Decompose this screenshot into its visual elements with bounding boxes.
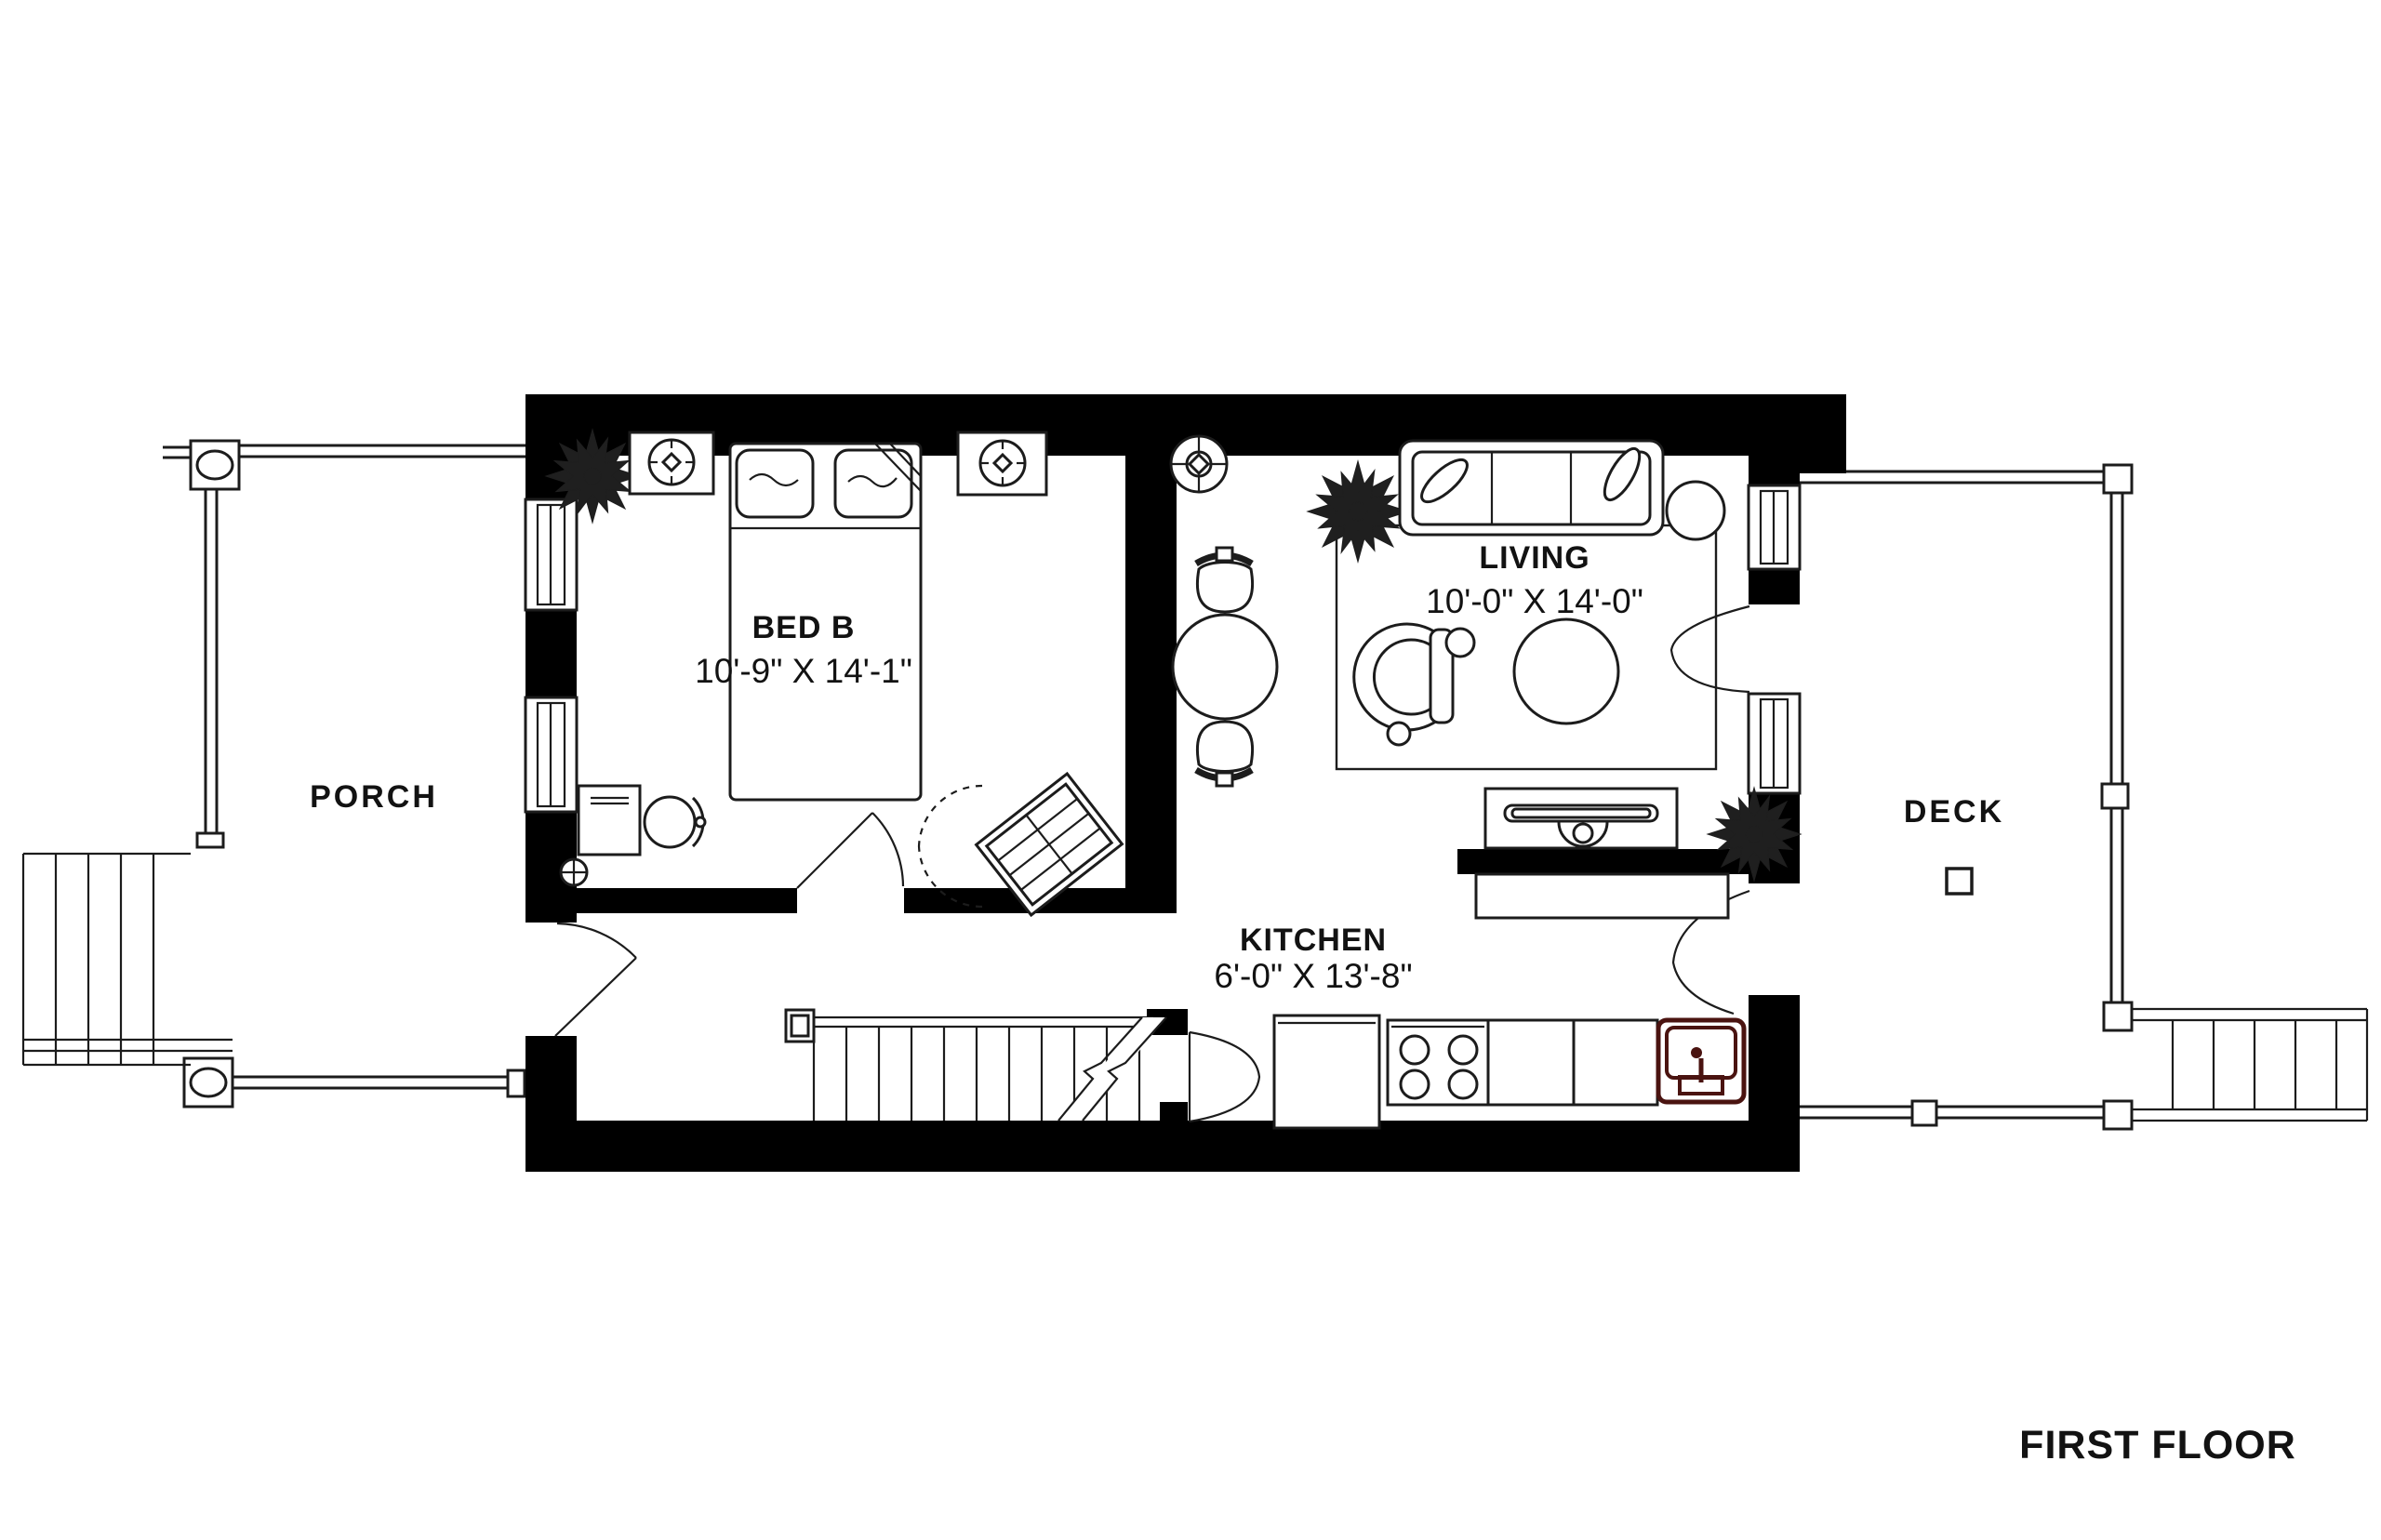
ceiling-fan-icon — [1171, 436, 1227, 492]
counter-icon — [1488, 1020, 1574, 1105]
living-label: LIVING — [1479, 540, 1590, 576]
deck-post-icon — [2104, 1002, 2132, 1030]
plan-title: FIRST FLOOR — [2019, 1423, 2296, 1467]
kitchen-dimensions: 6'-0" X 13'-8" — [1214, 957, 1412, 995]
tv-console-icon — [1485, 789, 1677, 848]
railing-cap — [508, 1070, 525, 1096]
round-dining-table-icon — [1173, 615, 1277, 719]
armchair-icon — [1354, 624, 1474, 745]
front-door-swing-icon — [555, 923, 636, 1036]
deck-post-icon — [2104, 1101, 2132, 1129]
deck-stairs-icon — [2132, 1009, 2367, 1121]
desk-chair-icon — [645, 797, 705, 847]
window-icon — [525, 697, 577, 812]
window-icon — [1749, 485, 1800, 569]
counter-icon — [1476, 874, 1728, 918]
outlet-icon — [561, 859, 587, 885]
plant-icon — [1300, 454, 1416, 569]
side-table-icon — [1667, 482, 1724, 539]
sofa-icon — [1400, 441, 1663, 535]
window-icon — [1749, 694, 1800, 793]
desk-icon — [579, 786, 640, 855]
porch-stairs-icon — [23, 854, 233, 1065]
living-deck-door-icon — [1671, 606, 1749, 692]
stove-icon — [1388, 1020, 1488, 1105]
deck-structure — [1800, 465, 2367, 1129]
deck-post-icon — [1912, 1101, 1936, 1125]
refrigerator-icon — [1274, 1016, 1379, 1128]
rack-swing-dashed — [919, 786, 982, 846]
dining-chair-icon — [1197, 563, 1252, 613]
stair-door-icon — [1190, 1032, 1259, 1122]
nightstand-icon — [630, 432, 713, 494]
window-icon — [525, 499, 577, 610]
bedroom-door-swing-icon — [797, 813, 903, 888]
deck-center-post-icon — [1947, 869, 1972, 894]
kitchen-label: KITCHEN — [1240, 923, 1387, 958]
ottoman-icon — [1514, 619, 1618, 724]
living-dimensions: 10'-0" X 14'-0" — [1426, 582, 1643, 620]
deck-post-icon — [2104, 465, 2132, 493]
staircase-icon — [786, 1010, 1166, 1121]
kitchen — [1274, 874, 1744, 1128]
railing-cap — [197, 833, 223, 847]
porch-label: PORCH — [310, 779, 438, 815]
bed-b-label: BED B — [752, 610, 856, 645]
deck-label: DECK — [1904, 794, 2004, 830]
counter-icon — [1574, 1020, 1657, 1105]
porch-structure — [23, 441, 525, 1107]
floor-plan-drawing: PORCH BED B 10'-9" X 14'-1" LIVING 10'-0… — [0, 0, 2381, 1540]
sink-icon — [1658, 1020, 1744, 1102]
nightstand-icon — [958, 432, 1046, 495]
dining-chair-icon — [1197, 722, 1252, 772]
dining-set — [1173, 548, 1277, 786]
deck-post-icon — [2102, 784, 2128, 808]
bed-b-dimensions: 10'-9" X 14'-1" — [695, 652, 912, 690]
living-room — [1171, 436, 1807, 887]
floor-plan-page: PORCH BED B 10'-9" X 14'-1" LIVING 10'-0… — [0, 0, 2381, 1540]
